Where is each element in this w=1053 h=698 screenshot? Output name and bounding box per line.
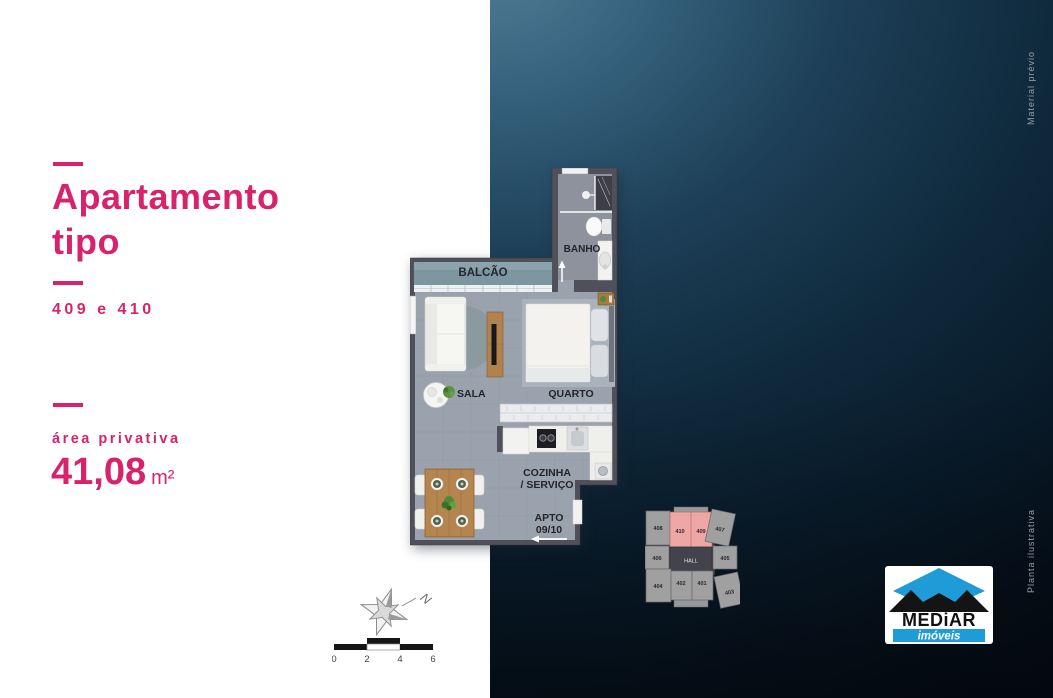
keyplan-unit-402: 402	[671, 571, 692, 600]
keyplan: 408 410 409 407 406 HALL 405 404	[645, 505, 740, 613]
scale-tick-4: 4	[397, 654, 402, 665]
logo-brand-text: MEDiAR	[902, 610, 976, 630]
keyplan-hall: HALL	[670, 547, 712, 573]
compass-north-label: N	[417, 590, 434, 608]
area-number: 41,08	[51, 451, 146, 493]
nightstand-icon	[598, 293, 614, 305]
svg-text:402: 402	[676, 581, 685, 587]
svg-text:404: 404	[653, 584, 663, 590]
private-area-value: 41,08m²	[51, 451, 174, 494]
page: Apartamento tipo 409 e 410 área privativ…	[0, 0, 1053, 698]
svg-text:409: 409	[696, 529, 705, 535]
page-title: Apartamento tipo	[52, 174, 280, 264]
logo-tagline-text: imóveis	[918, 631, 961, 643]
svg-text:410: 410	[675, 529, 684, 535]
keyplan-unit-405: 405	[713, 546, 737, 569]
keyplan-unit-403: 403	[714, 572, 740, 608]
living-window	[410, 296, 416, 334]
cooktop-icon	[537, 429, 556, 448]
tv-stand-icon	[487, 312, 503, 377]
apto-label-line1: APTO	[535, 512, 564, 524]
cabinet-icon	[503, 428, 529, 454]
compass-and-scale: N 0 2 4 6	[332, 585, 452, 680]
living-label: SALA	[457, 388, 486, 400]
kitchen-label-line1: COZINHA	[523, 467, 571, 479]
washer-icon	[595, 463, 611, 479]
entry-door	[573, 500, 582, 524]
svg-text:408: 408	[653, 526, 662, 532]
bathroom-label: BANHO	[564, 244, 601, 255]
bedroom-label: QUARTO	[548, 388, 593, 400]
sink-icon	[567, 427, 588, 450]
compass-rose-icon: N	[354, 585, 435, 642]
apto-label-line2: 09/10	[536, 524, 562, 536]
svg-text:401: 401	[697, 581, 706, 587]
private-area-label: área privativa	[52, 431, 181, 447]
kitchen-label-line2: / SERVIÇO	[521, 479, 574, 491]
toilet-icon	[586, 217, 611, 236]
keyplan-unit-401: 401	[692, 571, 713, 600]
svg-text:405: 405	[720, 556, 729, 562]
scale-bar: 0 2 4 6	[332, 638, 436, 665]
svg-text:406: 406	[652, 556, 661, 562]
scale-tick-2: 2	[364, 654, 369, 665]
margin-note-material-previo: Material prévio	[1026, 45, 1036, 125]
floorplan: BANHO BALCÃO	[410, 168, 627, 550]
accent-rule-top	[53, 162, 83, 166]
scale-tick-6: 6	[430, 654, 435, 665]
area-unit: m²	[151, 467, 174, 489]
dining-area	[415, 469, 484, 537]
keyplan-unit-404: 404	[646, 569, 671, 602]
unit-numbers: 409 e 410	[52, 301, 155, 319]
balcony-label: BALCÃO	[458, 266, 507, 279]
keyplan-unit-406: 406	[645, 546, 669, 569]
accent-rule-mid	[53, 281, 83, 285]
margin-note-planta-ilustrativa: Planta ilustrativa	[1026, 503, 1036, 593]
title-line-2: tipo	[52, 219, 280, 264]
bathroom-area: BANHO	[558, 168, 612, 292]
wardrobe-icon	[500, 404, 612, 422]
brand-logo: MEDiAR imóveis	[885, 566, 993, 644]
scale-tick-0: 0	[332, 654, 337, 665]
accent-rule-area	[53, 403, 83, 407]
keyplan-unit-408: 408	[646, 511, 670, 545]
sofa-icon	[425, 297, 466, 371]
bathroom-window	[562, 168, 588, 174]
title-line-1: Apartamento	[52, 174, 280, 219]
svg-text:HALL: HALL	[684, 559, 698, 565]
